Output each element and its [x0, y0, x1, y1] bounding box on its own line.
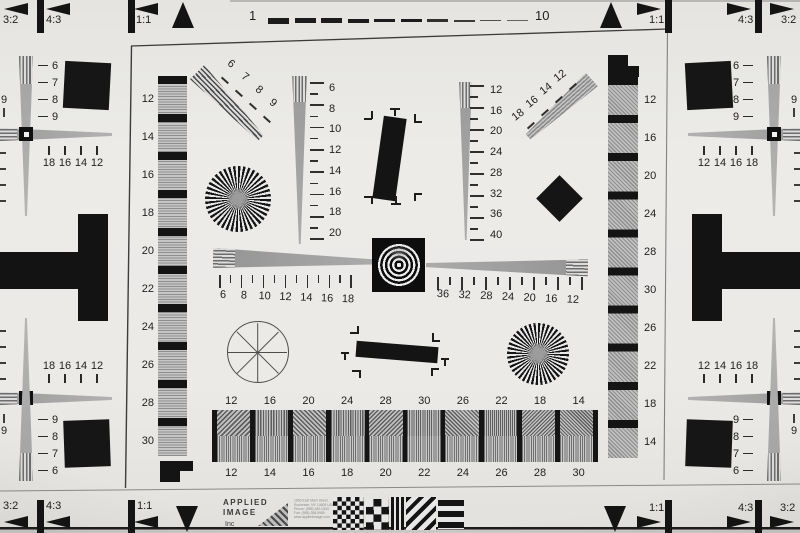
tilted-slanted-edge-bar [372, 116, 406, 201]
wedge-ticks [470, 85, 484, 241]
t-bar-vertical [78, 214, 108, 321]
aspect-label: 1:1 [136, 15, 151, 26]
registration-mark [414, 121, 422, 123]
registration-mark [414, 193, 422, 195]
wedge-scale-labels: 9876 [733, 411, 753, 479]
black-diamond-patch [536, 175, 583, 222]
wedge-tick-labels: 12141618 [696, 146, 760, 169]
resolution-test-chart-photo: 3:2 4:3 1:1 1 10 1:1 4:3 3:2 3:2 4:3 1:1… [0, 0, 800, 533]
edge-tick [0, 184, 6, 186]
edge-tick [794, 330, 800, 332]
cross-center-square [19, 127, 33, 141]
strip-end-mark [160, 470, 180, 482]
aspect-label: 3:2 [3, 501, 18, 512]
edge-number: 9 [791, 94, 797, 119]
registration-mark [394, 108, 396, 116]
edge-tick [794, 200, 800, 202]
logo-text: Inc [225, 521, 234, 528]
registration-mark [344, 352, 346, 360]
grayscale-step-strip-left [158, 76, 187, 456]
horizontal-resolution-wedge [426, 257, 588, 277]
fiducial-bar [665, 0, 672, 33]
triangle-up-icon [172, 2, 194, 28]
scale-end-label: 10 [535, 9, 549, 22]
t-bar-horizontal [0, 252, 78, 289]
wedge-scale-labels: 681012141618 [214, 289, 357, 306]
logo-text: APPLIED [223, 499, 268, 507]
grayscale-step-strip-right [608, 77, 638, 458]
wedge-scale-labels: 6789 [38, 57, 58, 125]
aspect-label: 4:3 [46, 15, 61, 26]
black-square-patch [63, 419, 111, 468]
aspect-label: 3:2 [3, 15, 18, 26]
arrow-right-icon [727, 516, 751, 528]
fiducial-bar [665, 500, 672, 533]
strip-labels-left: 12141618202224262830 [132, 76, 154, 456]
edge-tick [0, 378, 6, 380]
registration-mark [357, 326, 359, 334]
aspect-label: 3:2 [780, 503, 795, 514]
vertical-resolution-wedge [292, 76, 307, 244]
arrow-left-icon [134, 516, 158, 528]
center-bullseye-target [372, 238, 425, 292]
wedge-scale-labels: 36322824201612 [434, 288, 582, 306]
t-bar-horizontal [722, 252, 800, 289]
fiducial-bar [37, 0, 44, 33]
arrow-right-icon [770, 516, 794, 528]
wedge-scale-labels: 68101214161820 [329, 82, 341, 239]
siemens-star [205, 166, 271, 232]
strip-labels-right: 12162024283026221814 [644, 77, 666, 458]
checkerboard-coarse [366, 499, 389, 530]
black-square-patch [685, 61, 733, 110]
diagonal-bar-pattern [406, 497, 436, 530]
registration-mark [395, 196, 397, 204]
t-bar-vertical [692, 214, 722, 321]
arrow-right-icon [637, 516, 661, 528]
aspect-label: 3:2 [781, 15, 796, 26]
triangle-up-icon [600, 2, 622, 28]
hyperbolic-wedge-horizontal [688, 392, 800, 405]
fiducial-bar [37, 500, 44, 533]
aspect-label: 1:1 [649, 503, 664, 514]
edge-tick [0, 200, 6, 202]
wedge-ticks [310, 82, 324, 240]
aspect-label: 4:3 [738, 15, 753, 26]
edge-tick [794, 378, 800, 380]
hyperbolic-wedge-horizontal [0, 392, 112, 405]
registration-mark [359, 370, 361, 378]
edge-number: 9 [1, 94, 7, 119]
wedge-tick-labels: 12141618 [696, 360, 760, 383]
bottom-strip-top-labels: 12162024283026221814 [212, 395, 598, 407]
registration-mark [432, 340, 440, 342]
wedge-scale-labels: 1216202428323640 [490, 84, 502, 241]
scale-start-label: 1 [249, 9, 256, 22]
tapered-dash-scale [268, 16, 532, 25]
horizontal-bar-pattern [438, 500, 464, 529]
aspect-label: 1:1 [137, 501, 152, 512]
wedge-tick-labels: 18161412 [41, 360, 105, 383]
black-square-patch [63, 61, 111, 110]
black-square-patch [685, 419, 733, 468]
checkerboard-fine [333, 497, 364, 530]
bottom-strip-bottom-labels: 12141618202224262830 [212, 467, 598, 479]
edge-tick [794, 346, 800, 348]
edge-tick [794, 152, 800, 154]
registration-mark [371, 111, 373, 119]
horizontal-resolution-wedge [213, 248, 372, 272]
vertical-bar-pattern [391, 497, 404, 530]
edge-tick [794, 362, 800, 364]
edge-tick [794, 184, 800, 186]
registration-mark [431, 368, 439, 370]
registration-mark [371, 196, 373, 204]
cross-center-square [767, 127, 781, 141]
hyperbolic-wedge-horizontal [0, 128, 112, 141]
registration-mark [444, 358, 446, 366]
arrow-left-icon [4, 516, 28, 528]
triangle-down-icon [176, 506, 198, 532]
fiducial-bar [755, 0, 762, 33]
wedge-scale-labels: 9876 [38, 411, 58, 479]
frequency-pattern-strip [212, 410, 598, 462]
wedge-tick-labels: 18161412 [41, 146, 105, 169]
edge-number: 9 [1, 412, 7, 437]
logo-text: IMAGE [223, 509, 257, 517]
edge-tick [0, 346, 6, 348]
edge-tick [0, 362, 6, 364]
arrow-left-icon [46, 516, 70, 528]
aspect-label: 4:3 [738, 503, 753, 514]
edge-tick [0, 168, 6, 170]
aspect-label: 4:3 [46, 501, 61, 512]
tilted-slanted-edge-bar [355, 341, 438, 363]
aspect-label: 1:1 [649, 15, 664, 26]
siemens-star [507, 323, 569, 385]
edge-tick [0, 330, 6, 332]
strip-end-mark [608, 66, 639, 77]
edge-tick [794, 168, 800, 170]
wedge-ticks [219, 275, 352, 288]
edge-tick [0, 152, 6, 154]
edge-number: 9 [791, 412, 797, 437]
spoke-circle [227, 321, 289, 383]
fiducial-bar [755, 500, 762, 533]
hyperbolic-wedge-horizontal [688, 128, 800, 141]
triangle-down-icon [604, 506, 626, 532]
diagonal-resolution-wedge [190, 65, 268, 145]
wedge-scale-labels: 6789 [733, 57, 753, 125]
